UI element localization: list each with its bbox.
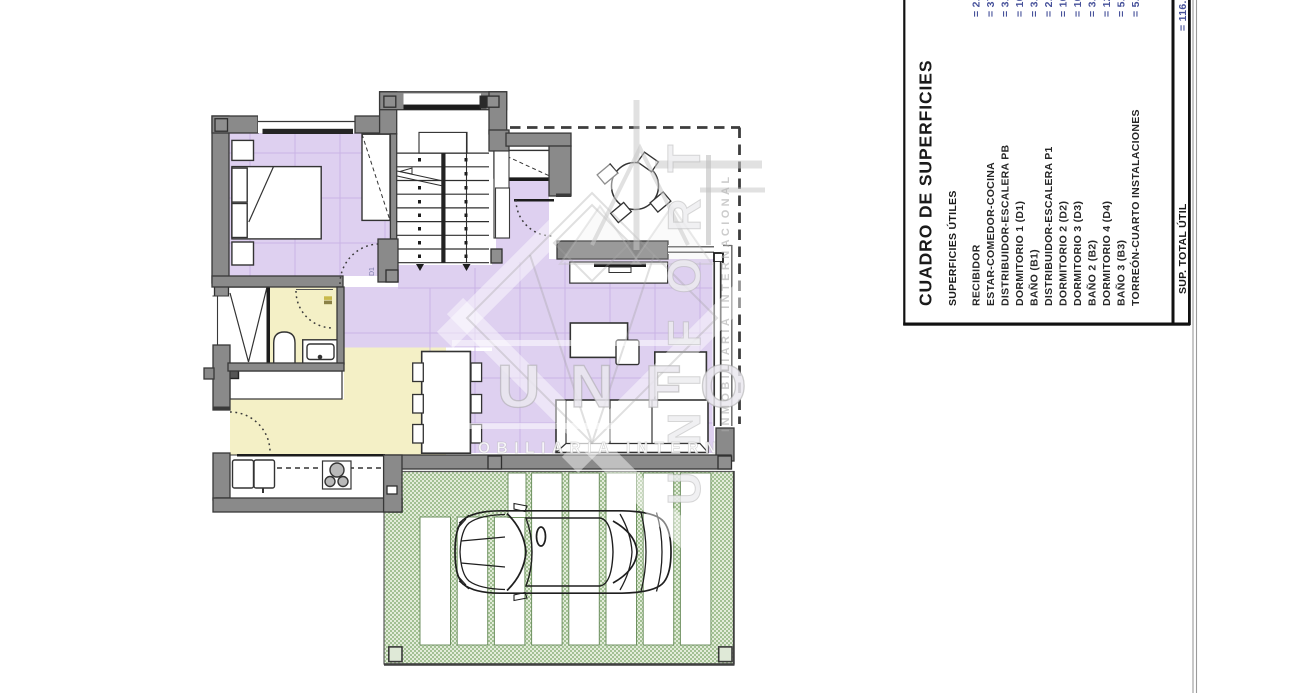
svg-text:BAÑO 3 (B3): BAÑO 3 (B3) <box>1115 240 1128 306</box>
svg-text:= 10.45: = 10.45 <box>1058 0 1070 17</box>
svg-text:= 116.05: = 116.05 <box>1177 0 1189 31</box>
svg-text:U: U <box>497 353 540 420</box>
svg-text:= 3.60: = 3.60 <box>1029 0 1041 17</box>
svg-text:RECIBIDOR: RECIBIDOR <box>971 244 983 306</box>
svg-text:SUP. TOTAL ÚTIL: SUP. TOTAL ÚTIL <box>1176 203 1189 294</box>
svg-text:BAÑO 2 (B2): BAÑO 2 (B2) <box>1086 240 1099 306</box>
svg-text:ESTAR-COMEDOR-COCINA: ESTAR-COMEDOR-COCINA <box>985 162 997 306</box>
svg-text:DORMITORIO 4 (D4): DORMITORIO 4 (D4) <box>1101 201 1113 306</box>
svg-text:= 10.30: = 10.30 <box>1072 0 1084 17</box>
svg-text:DISTRIBUIDOR-ESCALERA P1: DISTRIBUIDOR-ESCALERA P1 <box>1043 146 1055 306</box>
svg-text:= 5.60: = 5.60 <box>1130 0 1142 17</box>
svg-text:TORREÓN-CUARTO INSTALACIONES: TORREÓN-CUARTO INSTALACIONES <box>1129 109 1142 306</box>
svg-text:= 5.20: = 5.20 <box>1116 0 1128 17</box>
svg-text:OBILIARIA INTERN: OBILIARIA INTERN <box>478 440 723 457</box>
svg-text:= 10.25: = 10.25 <box>1014 0 1026 17</box>
svg-text:= 12.15: = 12.15 <box>1101 0 1113 17</box>
svg-text:DORMITORIO 1 (D1): DORMITORIO 1 (D1) <box>1014 201 1026 306</box>
svg-text:N: N <box>570 353 613 420</box>
svg-text:DISTRIBUIDOR-ESCALERA PB: DISTRIBUIDOR-ESCALERA PB <box>1000 144 1012 306</box>
svg-text:= 3.45: = 3.45 <box>1087 0 1099 17</box>
svg-text:SUPERFICIES ÚTILES: SUPERFICIES ÚTILES <box>946 190 959 306</box>
svg-text:= 2.60: = 2.60 <box>971 0 983 17</box>
svg-text:D1: D1 <box>369 267 376 276</box>
svg-text:CUADRO DE SUPERFICIES: CUADRO DE SUPERFICIES <box>916 60 936 306</box>
svg-text:DORMITORIO 3 (D3): DORMITORIO 3 (D3) <box>1072 201 1084 306</box>
svg-text:BAÑO (B1): BAÑO (B1) <box>1028 249 1041 306</box>
svg-text:= 37.70: = 37.70 <box>985 0 997 17</box>
svg-text:= 2.90: = 2.90 <box>1043 0 1055 17</box>
svg-text:= 3.15: = 3.15 <box>1000 0 1012 17</box>
svg-text:DORMITORIO 2 (D2): DORMITORIO 2 (D2) <box>1058 201 1070 306</box>
svg-text:INMOBILIARIA INTERNACIONAL: INMOBILIARIA INTERNACIONAL <box>720 174 732 432</box>
